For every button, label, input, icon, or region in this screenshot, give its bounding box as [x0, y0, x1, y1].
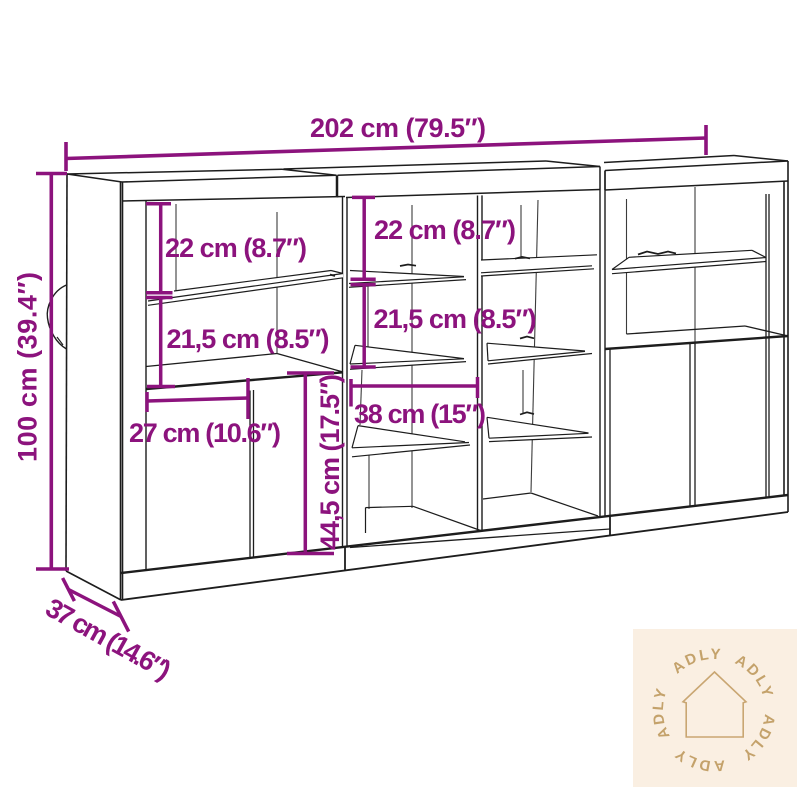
svg-text:38 cm (15″): 38 cm (15″): [354, 399, 486, 429]
svg-text:44,5 cm (17.5″): 44,5 cm (17.5″): [315, 374, 345, 550]
svg-text:202 cm (79.5″): 202 cm (79.5″): [310, 113, 486, 143]
svg-text:21,5 cm (8.5″): 21,5 cm (8.5″): [374, 304, 537, 334]
svg-text:22 cm (8.7″): 22 cm (8.7″): [165, 233, 307, 263]
svg-text:21,5 cm (8.5″): 21,5 cm (8.5″): [167, 324, 330, 354]
svg-text:100 cm (39.4″): 100 cm (39.4″): [13, 272, 43, 462]
svg-text:22 cm (8.7″): 22 cm (8.7″): [374, 215, 516, 245]
svg-text:27 cm (10.6″): 27 cm (10.6″): [129, 418, 281, 448]
